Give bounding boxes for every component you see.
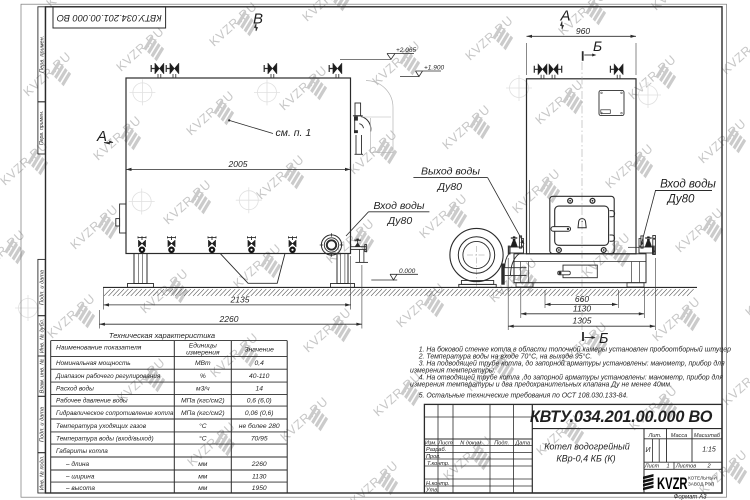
svg-text:2135: 2135 [230,295,250,305]
svg-text:Техническая характеристика: Техническая характеристика [109,331,215,340]
svg-text:Взам. инв. №: Взам. инв. № [39,359,45,394]
svg-text:мм: мм [198,461,208,468]
svg-text:2260: 2260 [219,314,239,324]
svg-text:Масса: Масса [671,433,688,439]
svg-text:Перв. примен.: Перв. примен. [39,111,45,145]
svg-text:Дата: Дата [514,440,530,446]
svg-text:Утв.: Утв. [425,488,439,494]
svg-text:660: 660 [575,294,589,304]
svg-text:KVZR: KVZR [657,474,688,493]
svg-text:5. Остальные технические треб: 5. Остальные технические требования по О… [419,392,629,400]
svg-text:Подп.: Подп. [494,440,509,446]
svg-text:ЗАВОД РЭП: ЗАВОД РЭП [688,482,714,487]
svg-text:Температура воды (вход/выход): Температура воды (вход/выход) [56,434,154,442]
svg-text:1130: 1130 [573,303,592,313]
svg-text:0,4: 0,4 [255,360,265,367]
svg-text:Выход воды: Выход воды [421,166,480,178]
svg-text:Ду80: Ду80 [387,215,413,227]
svg-text:0,6 (6,0): 0,6 (6,0) [247,398,272,405]
svg-text:Диапазон рабочего регулировани: Диапазон рабочего регулирования [55,372,161,380]
svg-text:14: 14 [255,386,263,393]
svg-text:КВТУ.034.201.00.000 ВО: КВТУ.034.201.00.000 ВО [57,13,162,23]
svg-text:+2.065: +2.065 [396,47,416,54]
svg-text:0,06 (0,6): 0,06 (0,6) [245,410,274,417]
svg-text:4. На отводящей трубе котла ,: 4. На отводящей трубе котла ,до запорной… [419,374,724,382]
svg-text:Н.контр.: Н.контр. [426,481,450,487]
svg-text:Т.контр.: Т.контр. [427,461,450,467]
svg-text:Номинальная мощность: Номинальная мощность [56,360,131,367]
svg-text:мм: мм [198,485,208,492]
svg-text:Масштаб: Масштаб [694,433,721,439]
svg-text:40-110: 40-110 [249,373,270,380]
svg-text:0.000: 0.000 [399,268,416,275]
svg-text:%: % [200,373,206,380]
svg-text:Габариты котла: Габариты котла [56,447,108,455]
svg-text:2005: 2005 [228,159,248,169]
svg-text:Лит.: Лит. [647,433,661,439]
svg-text:А: А [560,8,571,25]
svg-text:960: 960 [576,26,590,36]
svg-text:Лист: Лист [644,464,660,470]
svg-text:Пров.: Пров. [426,454,441,460]
svg-text:°С: °С [199,434,207,442]
svg-text:1130: 1130 [252,473,267,480]
svg-text:Вход воды: Вход воды [660,179,716,191]
svg-text:Инв. № дубл.: Инв. № дубл. [39,319,45,353]
svg-text:МПа (кгс/см2): МПа (кгс/см2) [181,410,225,417]
svg-text:КВр-0,4 КБ (К): КВр-0,4 КБ (К) [556,454,615,464]
svg-text:не более 280: не более 280 [239,422,280,430]
svg-text:– длина: – длина [65,460,90,468]
svg-text:Вход воды: Вход воды [374,200,425,212]
svg-text:Подп. и дата: Подп. и дата [39,270,45,305]
svg-text:МВт: МВт [195,360,211,367]
svg-text:Гидравлическое сопротивление к: Гидравлическое сопротивление котла [56,409,174,417]
svg-text:В: В [253,11,263,28]
svg-text:1305: 1305 [573,316,592,326]
svg-text:3. На подводящей трубе котла,: 3. На подводящей трубе котла, до запорно… [419,360,725,368]
svg-text:Наименование показателя: Наименование показателя [56,345,142,352]
svg-text:мм: мм [198,473,208,480]
svg-text:Значение: Значение [245,346,275,353]
svg-text:см. п. 1: см. п. 1 [276,127,312,139]
svg-text:измерения температуры.: измерения температуры. [410,368,496,375]
svg-text:Перв. примен.: Перв. примен. [39,36,45,73]
svg-text:– ширина: – ширина [65,473,95,480]
svg-text:Ду80: Ду80 [666,194,695,206]
svg-text:– высота: – высота [65,485,95,492]
svg-text:Разраб.: Разраб. [426,447,446,453]
svg-text:м3/ч: м3/ч [196,386,210,393]
svg-text:Формат А3: Формат А3 [674,494,707,500]
svg-text:КВТУ.034.201.00.000 ВО: КВТУ.034.201.00.000 ВО [530,408,713,426]
svg-text:70/95: 70/95 [251,435,268,442]
svg-text:Температура уходящих газов: Температура уходящих газов [56,422,147,430]
svg-text:Расход воды: Расход воды [56,385,94,393]
svg-text:1:15: 1:15 [702,447,716,454]
svg-text:1. На боковой стенке котла в: 1. На боковой стенке котла в области топ… [419,346,731,354]
svg-text:Подп. и дата: Подп. и дата [39,407,45,442]
svg-text:измерения температуры и два пр: измерения температуры и два предохраните… [410,381,672,389]
svg-text:измерения: измерения [186,349,220,356]
svg-text:Листов: Листов [675,464,696,470]
svg-text:1: 1 [666,464,669,470]
svg-text:2. Температура воды на входе: 2. Температура воды на входе 70°С, на вы… [418,353,593,361]
svg-text:+1.900: +1.900 [424,65,444,72]
svg-text:Рабочее давление воды: Рабочее давление воды [56,397,128,405]
svg-text:1950: 1950 [252,485,267,492]
svg-text:Б: Б [599,331,608,347]
svg-text:Лист: Лист [437,440,453,446]
svg-text:МПа (кгс/см2): МПа (кгс/см2) [181,398,225,405]
svg-text:Инв. № подл.: Инв. № подл. [39,456,45,491]
svg-text:КОТЕЛЬНЫЙ: КОТЕЛЬНЫЙ [688,474,717,481]
svg-text:Котел водогрейный: Котел водогрейный [544,442,630,452]
svg-text:N докум.: N докум. [460,440,483,446]
svg-text:Б: Б [593,38,602,54]
svg-text:Единицы: Единицы [189,341,217,349]
svg-text:2260: 2260 [251,461,267,468]
svg-text:Изм.: Изм. [425,440,437,446]
svg-text:Ду80: Ду80 [437,181,463,193]
svg-text:°С: °С [199,422,207,430]
